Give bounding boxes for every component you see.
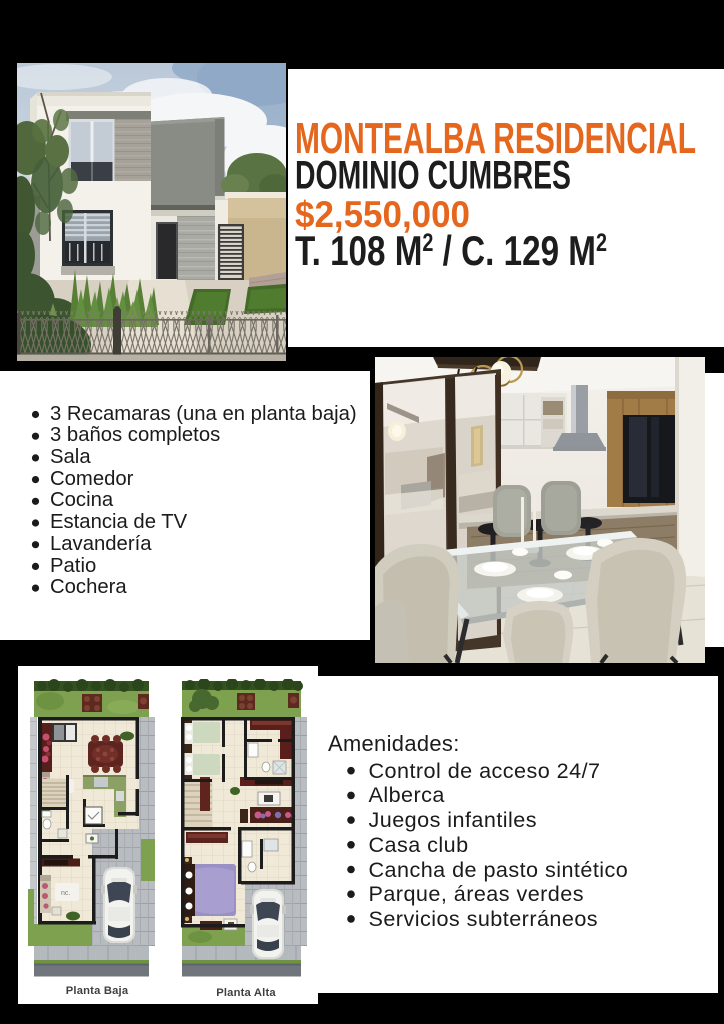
svg-text:T. 108 M2 / C. 129 M2: T. 108 M2 / C. 129 M2: [295, 227, 607, 274]
svg-text:DOMINIO CUMBRES: DOMINIO CUMBRES: [295, 153, 571, 198]
svg-text:nc.: nc.: [61, 890, 70, 897]
